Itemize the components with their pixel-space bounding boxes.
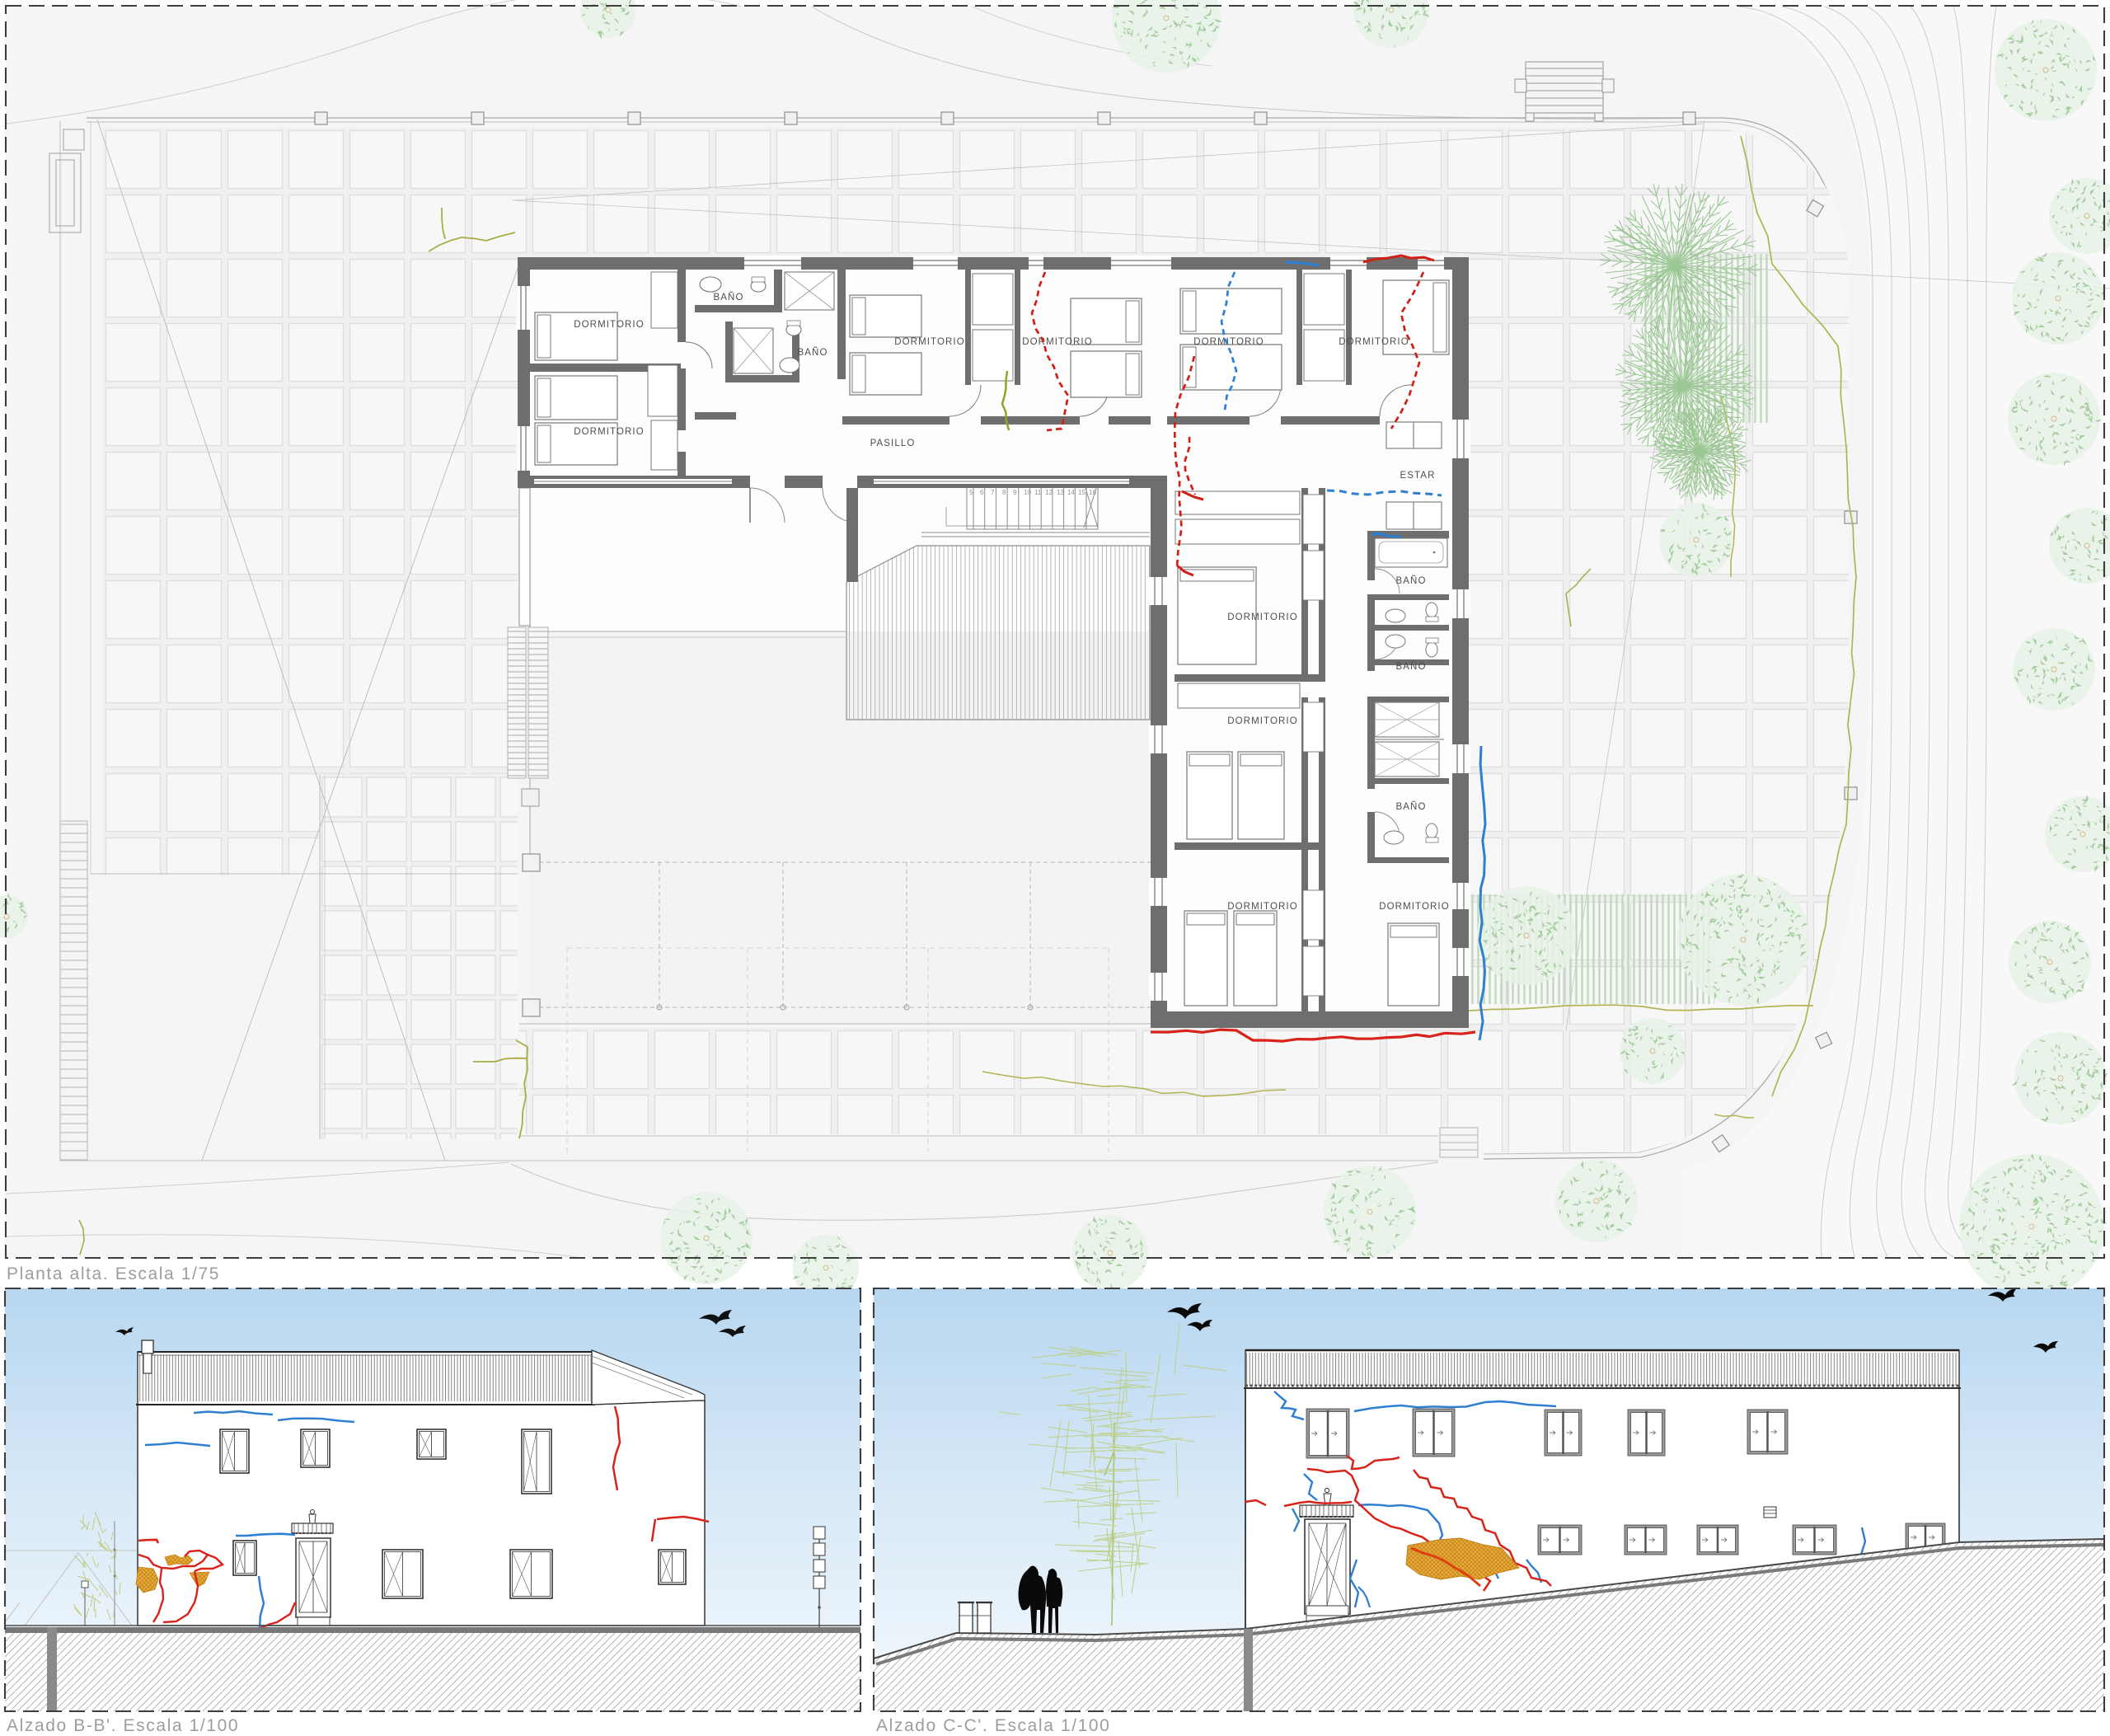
svg-text:Planta alta. Escala 1/75: Planta alta. Escala 1/75 — [7, 1264, 220, 1283]
svg-text:6: 6 — [980, 489, 984, 496]
svg-text:DORMITORIO: DORMITORIO — [1379, 902, 1450, 912]
svg-text:7: 7 — [991, 489, 995, 496]
svg-text:DORMITORIO: DORMITORIO — [1227, 902, 1298, 912]
svg-text:DORMITORIO: DORMITORIO — [1227, 612, 1298, 622]
svg-text:5: 5 — [969, 489, 973, 496]
svg-text:11: 11 — [1034, 489, 1042, 496]
svg-text:10: 10 — [1024, 489, 1031, 496]
svg-text:DORMITORIO: DORMITORIO — [1227, 716, 1298, 726]
svg-text:15: 15 — [1078, 489, 1085, 496]
svg-text:DORMITORIO: DORMITORIO — [574, 320, 645, 330]
svg-text:16: 16 — [1089, 489, 1096, 496]
svg-text:Alzado C-C'. Escala 1/100: Alzado C-C'. Escala 1/100 — [876, 1716, 1110, 1735]
svg-text:BAÑO: BAÑO — [1396, 575, 1427, 586]
svg-text:DORMITORIO: DORMITORIO — [1193, 337, 1264, 347]
svg-text:PASILLO: PASILLO — [870, 439, 916, 448]
svg-text:9: 9 — [1013, 489, 1017, 496]
svg-text:DORMITORIO: DORMITORIO — [894, 337, 965, 347]
svg-text:12: 12 — [1045, 489, 1053, 496]
svg-text:DORMITORIO: DORMITORIO — [574, 427, 645, 437]
svg-text:DORMITORIO: DORMITORIO — [1339, 337, 1409, 347]
svg-text:BAÑO: BAÑO — [798, 347, 828, 358]
svg-text:14: 14 — [1067, 489, 1075, 496]
svg-text:BAÑO: BAÑO — [714, 292, 744, 303]
svg-text:8: 8 — [1002, 489, 1006, 496]
svg-text:BAÑO: BAÑO — [1396, 801, 1427, 812]
svg-text:ESTAR: ESTAR — [1400, 471, 1436, 481]
svg-text:13: 13 — [1057, 489, 1064, 496]
svg-text:Alzado B-B'. Escala 1/100: Alzado B-B'. Escala 1/100 — [7, 1716, 239, 1735]
svg-text:BAÑO: BAÑO — [1396, 661, 1427, 672]
svg-text:DORMITORIO: DORMITORIO — [1022, 337, 1093, 347]
